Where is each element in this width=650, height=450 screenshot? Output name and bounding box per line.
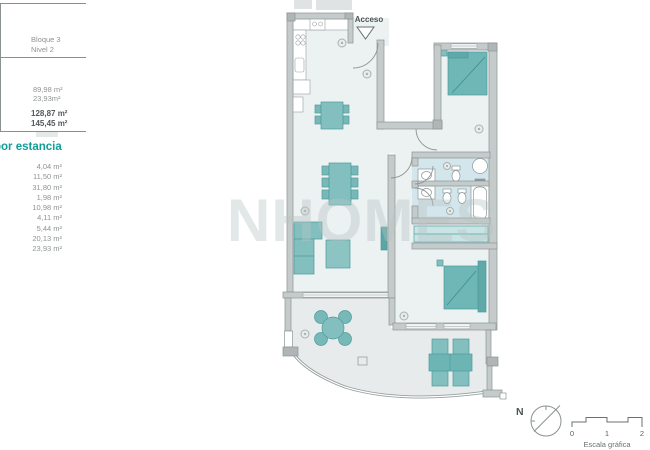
shower (473, 159, 488, 174)
entrance-label: Acceso (355, 15, 384, 24)
wall-post (345, 13, 353, 19)
floorplan-page: Bloque 3 Nivel 2 89,98 m² 23,93m² 128,87… (0, 0, 650, 450)
floorplan-drawing: Acceso N 0 1 2 Escala gráfica (0, 0, 650, 450)
toilet-1 (452, 166, 460, 170)
wall-post (287, 13, 295, 21)
wardrobe (414, 226, 488, 242)
bed-bedroom1 (441, 50, 487, 95)
kitchen-counter-side (293, 30, 306, 80)
scale-tick-1: 1 (605, 429, 609, 438)
tv (381, 227, 387, 250)
scale-caption: Escala gráfica (583, 440, 631, 449)
railing-post (500, 393, 506, 399)
entry-courtyard (384, 46, 434, 122)
wall-post (488, 43, 497, 51)
scale-tick-2: 2 (640, 429, 644, 438)
bed-bedroom2 (437, 260, 486, 312)
scale-tick-0: 0 (570, 429, 574, 438)
wall-radiator (292, 97, 303, 112)
nightstand (441, 50, 447, 56)
terrace-window (285, 331, 293, 347)
scale-bar: 0 1 2 Escala gráfica (570, 418, 644, 450)
north-compass-icon: N (516, 406, 561, 437)
nightstand (437, 260, 443, 266)
overhang-mark (294, 0, 312, 9)
north-label: N (516, 406, 524, 418)
dining-table-set (322, 163, 358, 205)
overhang-mark (316, 0, 352, 10)
coffee-table (326, 240, 350, 268)
kitchen-counter-end (293, 80, 310, 94)
